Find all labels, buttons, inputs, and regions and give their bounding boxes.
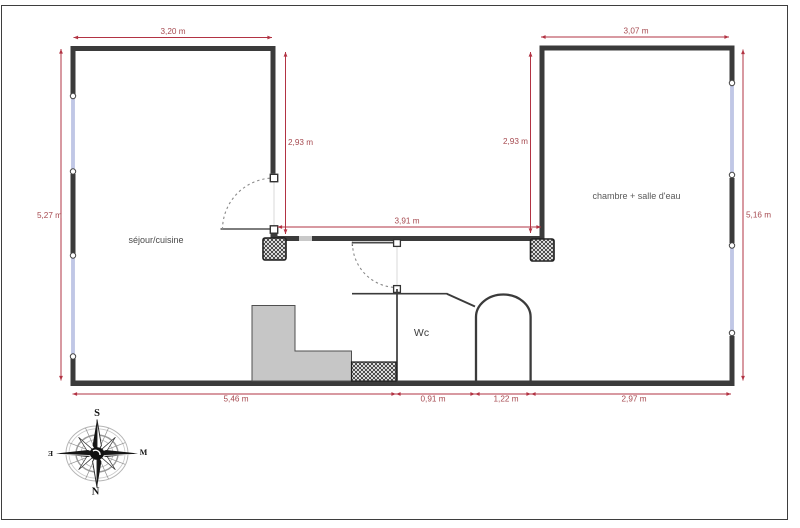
svg-text:5,27 m: 5,27 m bbox=[37, 211, 62, 220]
svg-text:Wc: Wc bbox=[414, 327, 429, 339]
svg-text:3,20 m: 3,20 m bbox=[160, 27, 185, 36]
svg-text:S: S bbox=[94, 408, 100, 419]
svg-text:2,97 m: 2,97 m bbox=[621, 395, 646, 404]
svg-text:5,16 m: 5,16 m bbox=[746, 211, 771, 220]
svg-text:1,22 m: 1,22 m bbox=[493, 395, 518, 404]
svg-text:2,93 m: 2,93 m bbox=[503, 137, 528, 146]
svg-text:M: M bbox=[140, 448, 148, 457]
svg-text:3,91 m: 3,91 m bbox=[394, 217, 419, 226]
svg-text:E: E bbox=[48, 449, 53, 458]
svg-text:3,07 m: 3,07 m bbox=[623, 27, 648, 36]
svg-text:N: N bbox=[92, 487, 100, 498]
svg-text:chambre + salle d'eau: chambre + salle d'eau bbox=[592, 191, 680, 201]
svg-text:séjour/cuisine: séjour/cuisine bbox=[128, 235, 183, 245]
svg-text:2,93 m: 2,93 m bbox=[288, 138, 313, 147]
svg-text:0,91 m: 0,91 m bbox=[420, 395, 445, 404]
svg-text:5,46 m: 5,46 m bbox=[223, 395, 248, 404]
